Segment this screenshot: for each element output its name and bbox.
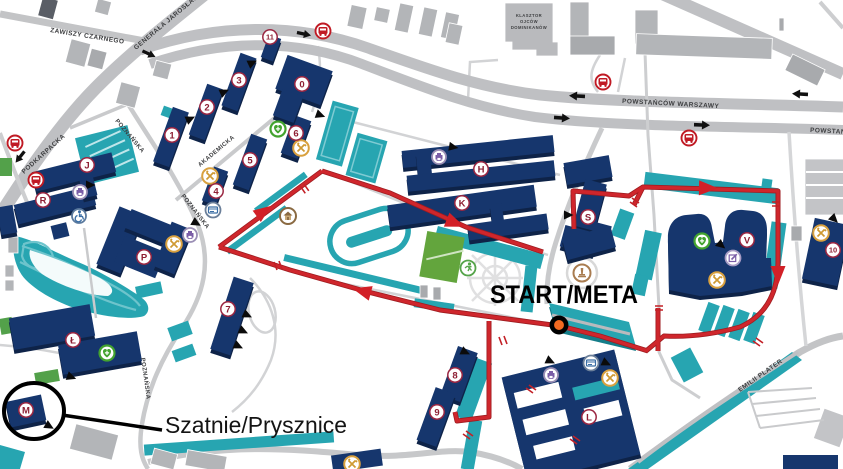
svg-text:V: V [744, 235, 751, 246]
svg-text:0: 0 [299, 79, 304, 90]
svg-text:S: S [585, 212, 591, 223]
svg-text:6: 6 [293, 128, 298, 139]
svg-text:3: 3 [236, 75, 241, 86]
svg-text:P: P [141, 252, 148, 263]
svg-text:H: H [478, 164, 485, 175]
svg-text:DOMINIKANÓW: DOMINIKANÓW [511, 25, 547, 30]
svg-text:7: 7 [225, 304, 230, 315]
svg-text:START/META: START/META [490, 281, 638, 309]
svg-text:10: 10 [829, 245, 837, 254]
svg-text:OJCÓW: OJCÓW [520, 19, 538, 24]
svg-text:11: 11 [266, 32, 274, 41]
svg-text:J: J [84, 160, 89, 171]
svg-text:4: 4 [213, 186, 219, 197]
svg-text:8: 8 [452, 370, 457, 381]
svg-text:K: K [459, 198, 466, 209]
svg-text:KLASZTOR: KLASZTOR [516, 13, 542, 18]
svg-text:L: L [586, 412, 592, 423]
svg-text:5: 5 [247, 155, 253, 166]
svg-text:9: 9 [434, 407, 439, 418]
svg-text:Szatnie/Prysznice: Szatnie/Prysznice [165, 412, 347, 438]
svg-text:2: 2 [204, 102, 209, 113]
svg-text:R: R [40, 195, 47, 206]
svg-text:1: 1 [169, 130, 175, 141]
svg-text:M: M [22, 405, 30, 416]
svg-text:Ł: Ł [70, 335, 76, 346]
